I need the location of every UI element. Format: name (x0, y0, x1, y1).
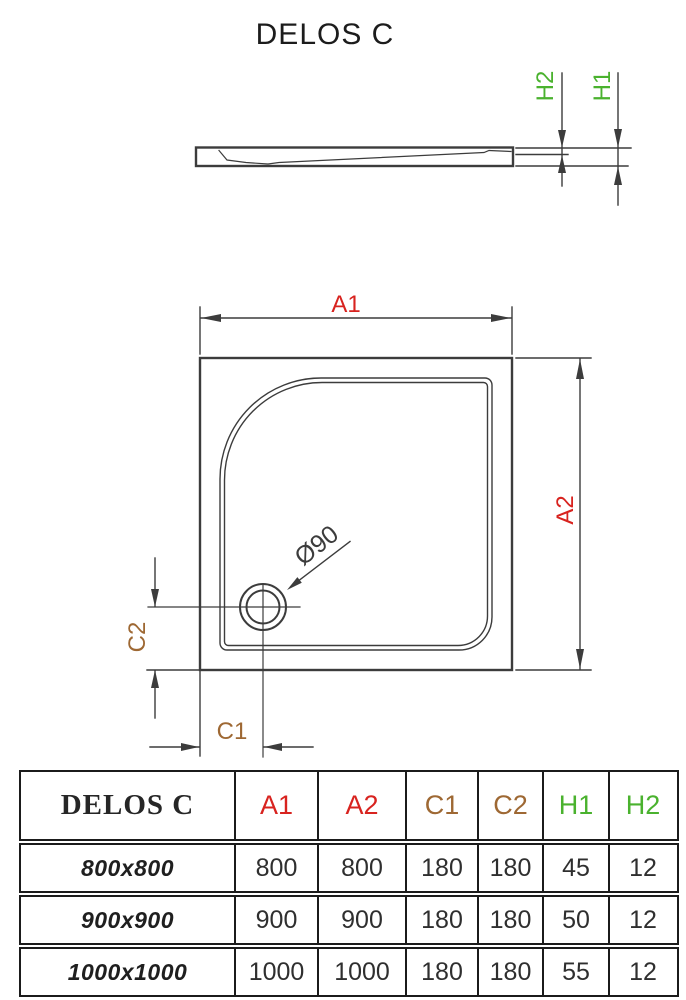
table-col-h2: H2 (608, 772, 676, 839)
cell-value: 12 (608, 897, 676, 943)
cell-value: 180 (405, 897, 477, 943)
tray-rim-outer-line (220, 378, 492, 650)
arrowhead (151, 670, 159, 688)
arrowhead (614, 129, 622, 148)
table-row: 800x800 800 800 180 180 45 12 (19, 843, 679, 893)
arrowhead (287, 577, 302, 590)
technical-drawing-page: DELOS C (0, 0, 686, 1000)
arrowhead (181, 743, 199, 751)
tray-profile-outline (196, 148, 513, 167)
cell-value: 180 (477, 845, 542, 891)
row-size-label: 900x900 (21, 897, 234, 943)
cell-value: 900 (317, 897, 405, 943)
cell-value: 800 (317, 845, 405, 891)
dim-h2 (558, 73, 566, 186)
tray-profile-basin-line (219, 151, 511, 165)
table-col-c2: C2 (477, 772, 542, 839)
arrowhead (264, 743, 282, 751)
dim-c2 (147, 558, 200, 718)
table-product-name: DELOS C (21, 772, 234, 839)
cell-value: 12 (608, 949, 676, 995)
table-row: 1000x1000 1000 1000 180 180 55 12 (19, 947, 679, 997)
row-size-label: 800x800 (21, 845, 234, 891)
cell-value: 800 (234, 845, 317, 891)
cell-value: 1000 (317, 949, 405, 995)
dim-label-h2: H2 (534, 71, 558, 102)
table-col-c1: C1 (405, 772, 477, 839)
table-col-a2: A2 (317, 772, 405, 839)
cell-value: 55 (542, 949, 608, 995)
table-header-row: DELOS C A1 A2 C1 C2 H1 H2 (19, 770, 679, 841)
tray-side-view (196, 73, 631, 205)
cell-value: 180 (477, 897, 542, 943)
dim-label-a1: A1 (331, 293, 360, 317)
cell-value: 45 (542, 845, 608, 891)
arrowhead (201, 314, 221, 322)
arrowhead (614, 167, 622, 186)
tray-rim-inner-line (225, 383, 488, 646)
drain (148, 542, 350, 758)
drawing-svg (0, 0, 686, 760)
row-size-label: 1000x1000 (21, 949, 234, 995)
cell-value: 180 (405, 845, 477, 891)
cell-value: 180 (405, 949, 477, 995)
arrowhead (151, 589, 159, 607)
arrowhead (491, 314, 511, 322)
spec-table: DELOS C A1 A2 C1 C2 H1 H2 800x800 800 80… (19, 770, 679, 997)
table-col-a1: A1 (234, 772, 317, 839)
tray-plan-view (147, 307, 591, 757)
dim-label-h1: H1 (591, 71, 615, 102)
dim-label-c1: C1 (217, 720, 248, 744)
cell-value: 180 (477, 949, 542, 995)
cell-value: 900 (234, 897, 317, 943)
arrowhead (576, 359, 584, 379)
dim-label-a2: A2 (554, 495, 578, 524)
arrowhead (558, 155, 566, 173)
dim-label-c2: C2 (126, 622, 150, 653)
cell-value: 50 (542, 897, 608, 943)
table-col-h1: H1 (542, 772, 608, 839)
arrowhead (558, 130, 566, 148)
arrowhead (576, 649, 584, 669)
table-row: 900x900 900 900 180 180 50 12 (19, 895, 679, 945)
cell-value: 1000 (234, 949, 317, 995)
cell-value: 12 (608, 845, 676, 891)
